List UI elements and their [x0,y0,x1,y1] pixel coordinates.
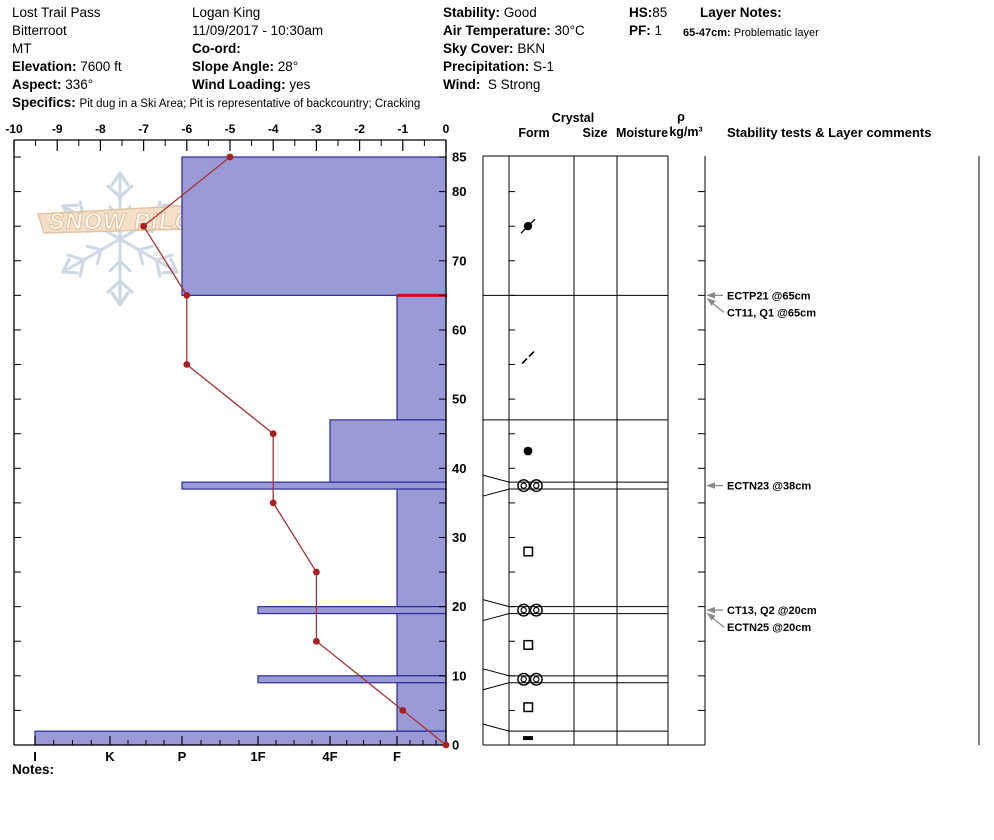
grain-glyph [524,547,533,556]
form-header: Form [518,126,549,140]
grain-glyph [518,673,530,685]
thin-layer-flag [483,489,509,496]
thin-layer-flag [483,614,509,621]
grain-glyph [521,219,535,233]
temp-point-55cm [183,361,190,368]
temp-tick-label: -3 [311,122,322,136]
temp-tick-label: -7 [138,122,149,136]
hardness-layer-bars [35,157,447,745]
grain-glyph [521,483,526,488]
hardness-label: P [178,749,187,764]
grain-symbol-facets [524,641,533,650]
layer-bar-20-19cm [258,607,446,614]
grain-symbol-melt-freeze-crust [518,604,542,616]
thin-layer-flag [483,724,509,731]
snowflake-icon [57,173,183,305]
grain-symbol-rounded-grains [524,447,533,456]
temp-point-0cm [443,742,450,749]
layer-bar-38-37cm [182,482,446,489]
layer-bar-19-10cm [397,614,446,676]
temp-tick-label: -6 [181,122,192,136]
stability-test-label: ECTN23 @38cm [727,481,811,493]
temp-tick-label: -10 [5,122,23,136]
grain-glyph [531,604,543,616]
thin-layer-flag [483,683,509,690]
grain-glyph [531,480,543,492]
grain-glyph [518,604,530,616]
grain-symbol-facets [524,703,533,712]
arrow-head [706,292,715,298]
depth-label: 80 [452,184,466,199]
grain-glyph [531,673,543,685]
depth-label: 50 [452,392,466,407]
temp-tick-label: -8 [95,122,106,136]
temperature-axis: -10-9-8-7-6-5-4-3-2-10 [5,122,449,151]
stability-test-label: CT11, Q1 @65cm [727,307,816,319]
arrow-head [706,482,715,488]
density-header: ρ [677,110,685,124]
temp-tick-label: -2 [354,122,365,136]
temp-point-85cm [227,154,234,161]
crystal-table [483,156,979,745]
grain-symbol-melt-freeze-crust [518,480,542,492]
depth-label: 0 [452,738,459,753]
grain-glyph [523,736,533,740]
layer-bar-47-38cm [330,420,446,482]
hardness-label: F [393,749,401,764]
hardness-label: K [105,749,115,764]
hardness-label: 1F [250,749,265,764]
thin-layer-flag [483,475,509,482]
grain-symbols [518,219,542,740]
stability-test-label: CT13, Q2 @20cm [727,605,817,617]
temp-point-35cm [270,499,277,506]
temp-point-45cm [270,430,277,437]
temp-tick-label: -1 [397,122,408,136]
temp-tick-label: -5 [225,122,236,136]
layer-bar-85-65cm [182,157,446,295]
layer-bar-65-47cm [397,295,446,420]
grain-symbol-decomposing-fragments [521,219,535,233]
grain-glyph [534,677,539,682]
grain-symbol-ice-layer [523,736,533,740]
layer-bar-2-0cm [35,731,446,745]
grain-symbol-broken-dashes [522,352,534,364]
temp-point-75cm [140,223,147,230]
crystal-header: Crystal [552,111,594,125]
snowflake-arm [108,239,132,305]
grain-symbol-melt-freeze-crust [518,673,542,685]
layer-bar-10-9cm [258,676,446,683]
grain-glyph [521,677,526,682]
grain-glyph [518,480,530,492]
layer-bar-9-2cm [397,683,446,731]
temp-tick-label: -9 [52,122,63,136]
thin-layer-flag [483,669,509,676]
grain-glyph [529,352,534,357]
snowpilot-report: Lost Trail Pass Bitterroot MT Elevation:… [0,0,994,840]
notes-label: Notes: [12,762,54,777]
depth-label: 30 [452,530,466,545]
temp-point-15cm [313,638,320,645]
size-header: Size [582,126,607,140]
depth-label: 10 [452,668,466,683]
stability-tests: ECTP21 @65cmCT11, Q1 @65cmECTN23 @38cmCT… [705,290,817,634]
grain-glyph [524,447,533,456]
stability-header: Stability tests & Layer comments [727,125,931,140]
snow-profile-chart: SNOW PILOT-10-9-8-7-6-5-4-3-2-1085807060… [0,0,994,812]
temp-point-5cm [399,707,406,714]
stability-test-label: ECTP21 @65cm [727,290,811,302]
temp-tick-label: -4 [268,122,279,136]
depth-label: 60 [452,322,466,337]
density-units-header: kg/m³ [669,125,702,139]
depth-label: 70 [452,253,466,268]
temp-point-65cm [183,292,190,299]
grain-glyph [524,641,533,650]
grain-glyph [522,359,527,364]
grain-glyph [524,703,533,712]
depth-label: 40 [452,461,466,476]
temp-point-25cm [313,569,320,576]
temp-tick-label: 0 [443,122,450,136]
grain-symbol-facets [524,547,533,556]
depth-label: 20 [452,599,466,614]
grain-glyph [521,608,526,613]
arrow-head [706,607,715,613]
layer-bar-37-20cm [397,489,446,607]
moisture-header: Moisture [616,126,668,140]
hardness-label: 4F [322,749,337,764]
table-headers: CrystalFormSizeMoistureρkg/m³Stability t… [518,110,931,140]
stability-test-label: ECTN25 @20cm [727,622,811,634]
thin-layer-flag [483,600,509,607]
depth-label: 85 [452,150,466,165]
grain-glyph [534,483,539,488]
grain-glyph [534,608,539,613]
